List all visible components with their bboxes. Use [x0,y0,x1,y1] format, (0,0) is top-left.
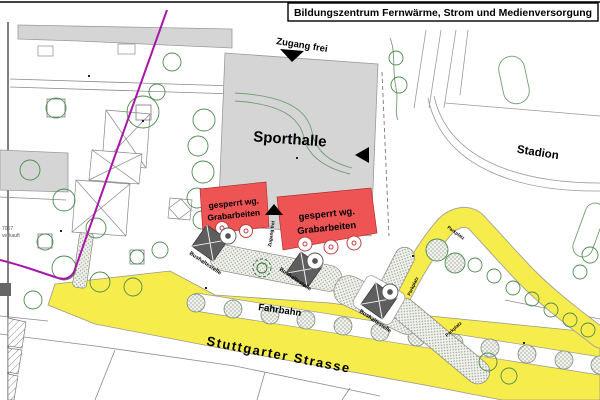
title-bar: Bildungszentrum Fernwärme, Strom und Med… [288,3,598,21]
hatched-strips [8,318,26,400]
stadium: Stadion [414,30,600,191]
dashed-boundary [382,72,389,236]
parcel-status: verkauft [2,233,20,239]
construction-areas [72,110,192,236]
building-left [0,150,68,192]
stadion-label: Stadion [516,144,560,162]
utility-box [0,283,11,296]
parcel-number: 7067 [2,226,13,232]
site-plan-svg: Stadion Sporthalle Zugang frei [0,0,600,400]
page-title: Bildungszentrum Fernwärme, Strom und Med… [294,8,592,19]
